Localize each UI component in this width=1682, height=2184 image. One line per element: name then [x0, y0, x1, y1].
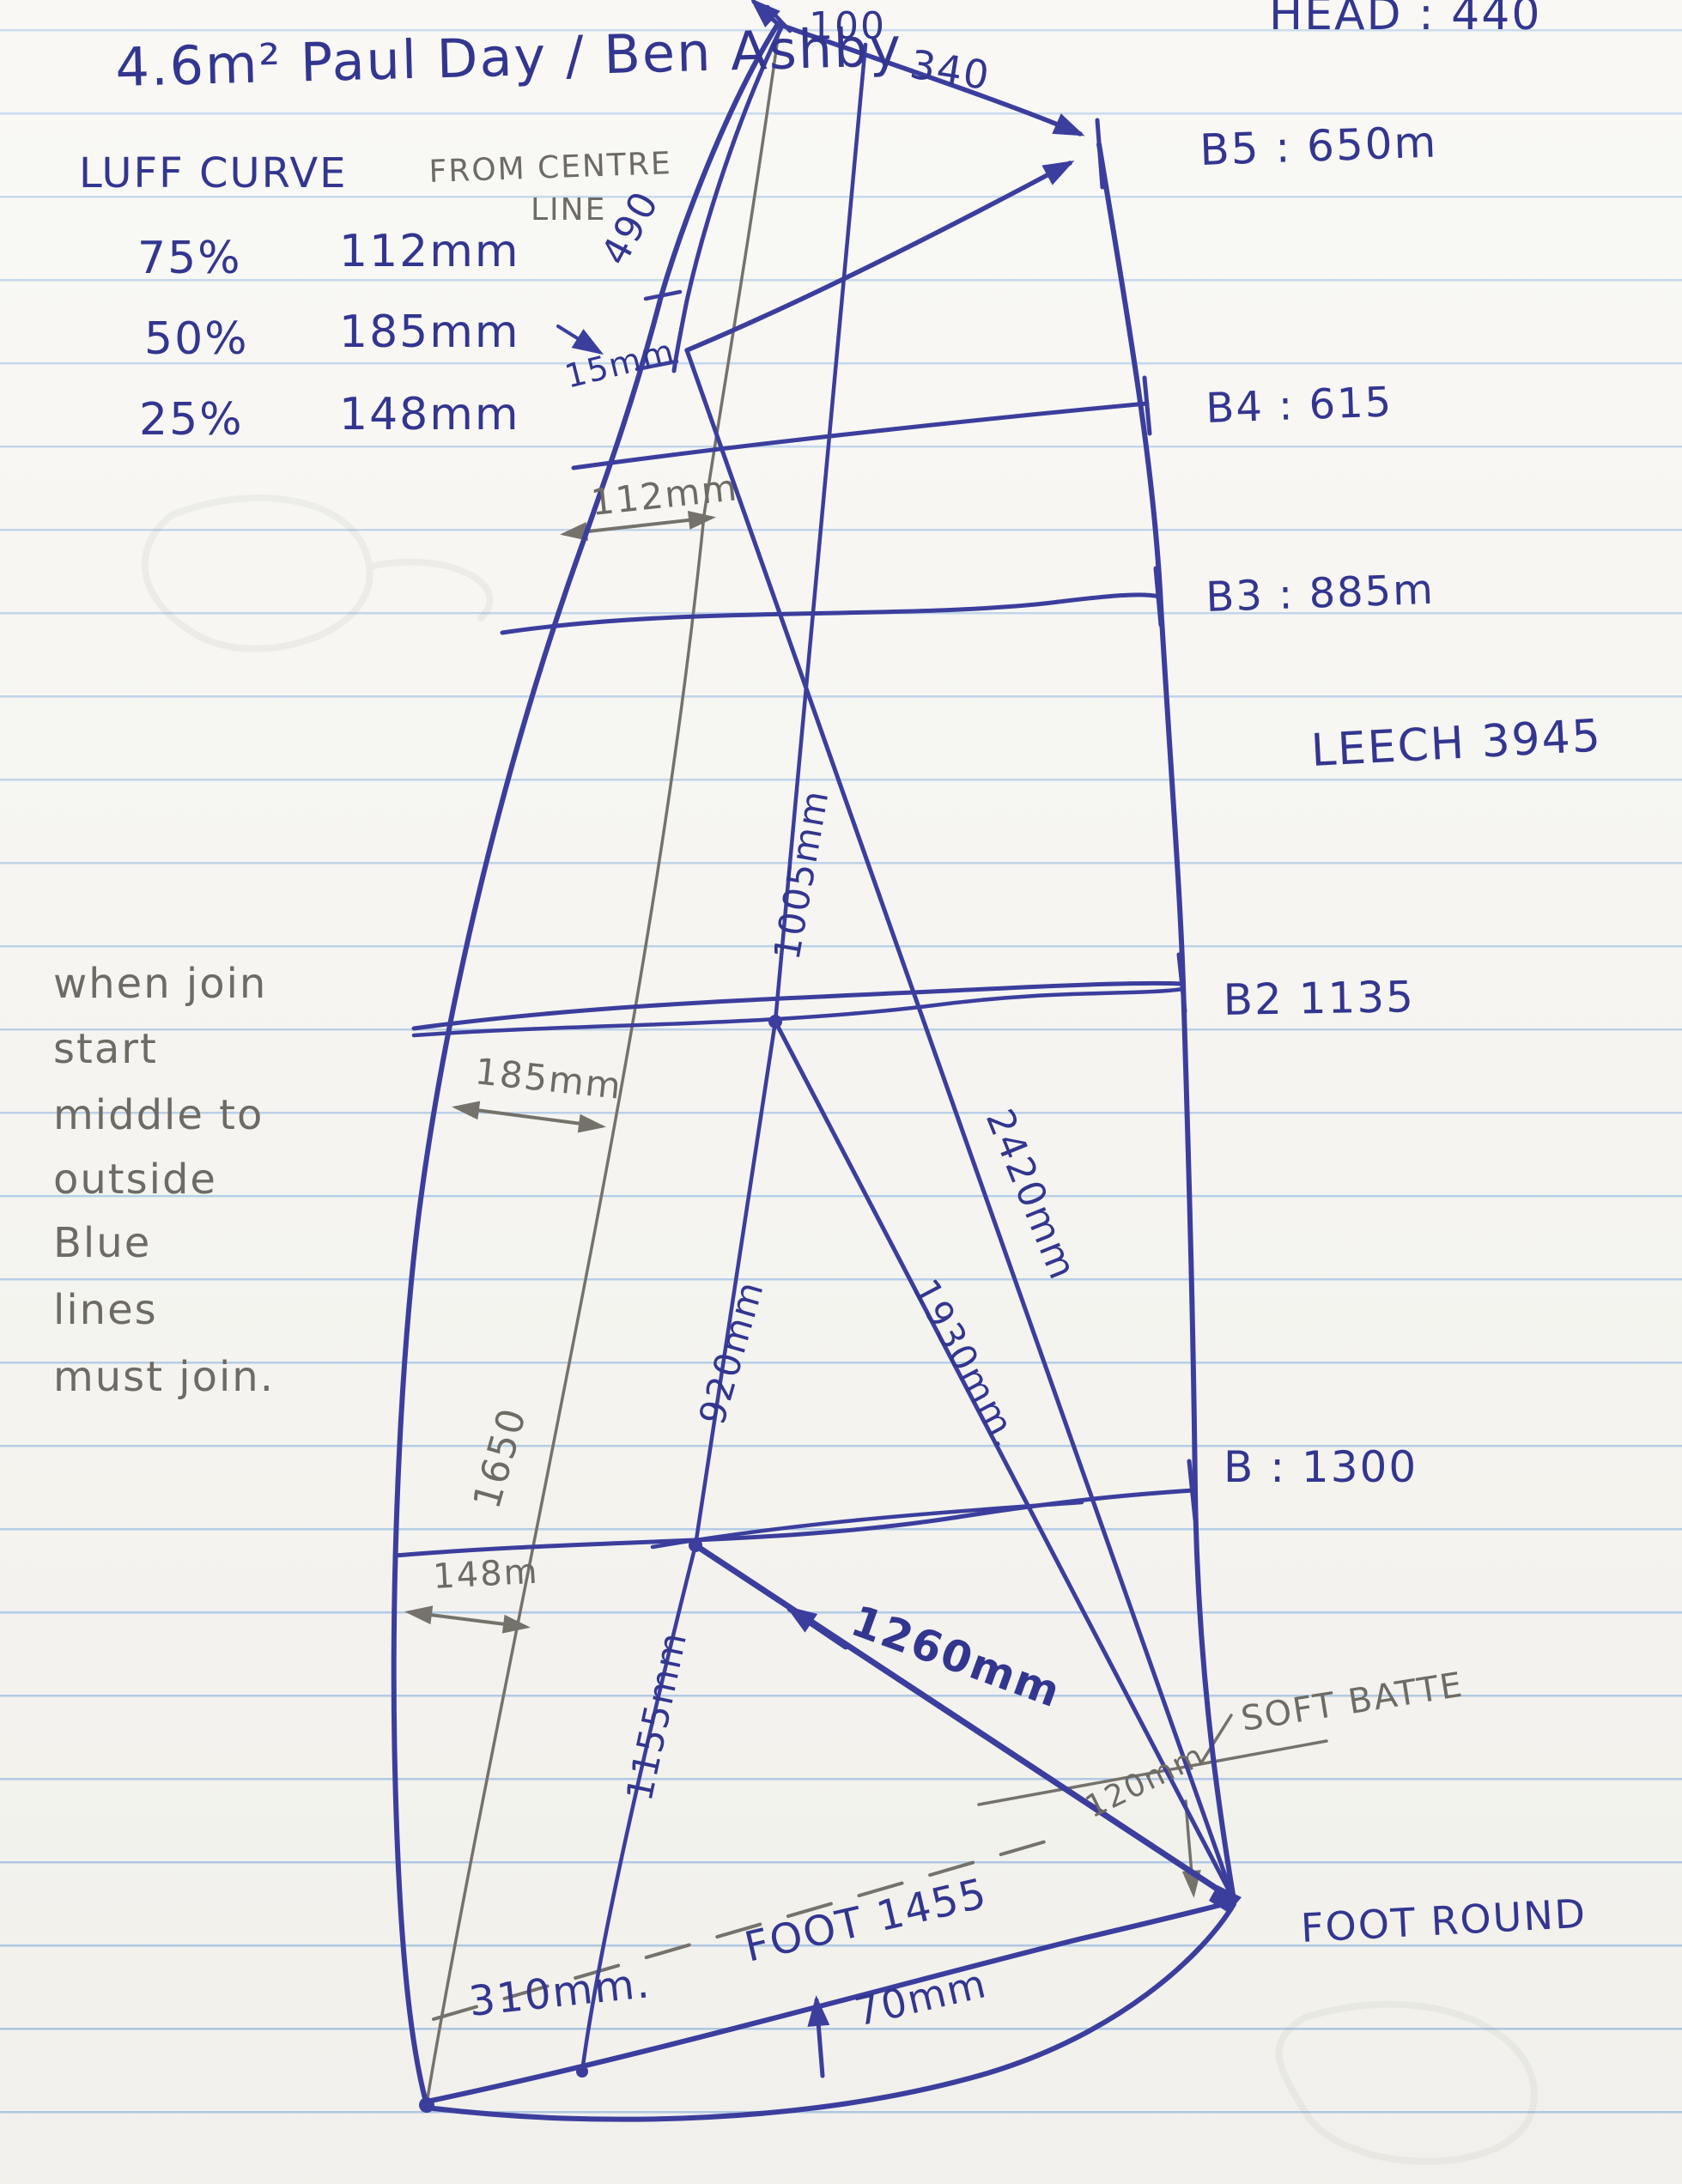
- measure-112-label: 112mm: [589, 466, 740, 524]
- luff-curve-heading: LUFF CURVE: [79, 149, 348, 197]
- batten-b2-label: B2 1135: [1223, 972, 1415, 1025]
- tack-point: [419, 2097, 434, 2113]
- luff-row-50-pct: 50%: [144, 313, 249, 365]
- measure-1650-label: 1650: [465, 1403, 536, 1514]
- margin-note-3: middle to: [53, 1091, 264, 1139]
- margin-note-6: lines: [53, 1286, 158, 1334]
- measure-185-arrow: [457, 1107, 601, 1126]
- margin-note-4: outside: [53, 1156, 217, 1204]
- leech-label: LEECH 3945: [1310, 710, 1604, 777]
- measure-185-label: 185mm: [473, 1050, 624, 1107]
- measure-1260-label: 1260mm: [845, 1596, 1068, 1718]
- line-1260-arrow: [790, 1609, 846, 1647]
- measure-310-label: 310mm.: [466, 1959, 653, 2026]
- measure-920-label: 920mm: [691, 1276, 773, 1429]
- measure-1930-label: 1930mm.: [904, 1272, 1029, 1456]
- measure-148-label: 148m: [432, 1552, 540, 1597]
- measure-1005-label: 1005mm: [766, 786, 837, 963]
- page-title: 4.6m² Paul Day / Ben Ashby: [114, 15, 902, 99]
- margin-note-1: when join: [53, 960, 267, 1008]
- luff-curve-note-1: FROM CENTRE: [428, 146, 672, 190]
- sail-plan-sketch: 4.6m² Paul Day / Ben Ashby HEAD : 440 LU…: [0, 0, 1682, 2184]
- foot-round-label: FOOT ROUND: [1300, 1890, 1588, 1951]
- margin-note-2: start: [53, 1025, 158, 1073]
- batten-b3-line: [502, 595, 1159, 633]
- leech-tick-b5: [1097, 120, 1102, 187]
- line-1260: [695, 1545, 1234, 1900]
- luff-15mm-label: 15mm: [562, 331, 679, 395]
- junction-b2: [768, 1015, 782, 1028]
- measure-148-arrow: [410, 1612, 525, 1627]
- luff-curve-note-2: LINE: [531, 192, 606, 227]
- head-width-label: 100: [809, 4, 886, 48]
- margin-note-7: must join.: [53, 1353, 275, 1401]
- measure-2420-label: 2420mm: [977, 1103, 1085, 1287]
- notebook-page: 4.6m² Paul Day / Ben Ashby HEAD : 440 LU…: [0, 0, 1682, 2184]
- foot-length-label: FOOT 1455: [740, 1869, 992, 1971]
- pencil-ghost: [145, 498, 490, 649]
- pencil-ghost: [1279, 2005, 1534, 2162]
- batten-b2-line: [414, 983, 1183, 1028]
- batten-b1-line: [395, 1490, 1193, 1556]
- junction-b1: [689, 1538, 702, 1552]
- luff-row-25-pct: 25%: [139, 394, 244, 446]
- batten-b4-label: B4 : 615: [1205, 378, 1394, 433]
- measure-70-label: 70mm: [850, 1960, 991, 2035]
- batten-b4-line: [574, 403, 1147, 468]
- measure-70-arrow: [817, 2000, 823, 2076]
- soft-batten-tick: [1202, 1715, 1231, 1762]
- measure-1155-label: 1155mm: [618, 1628, 695, 1805]
- luff-row-25-val: 148mm: [339, 389, 520, 440]
- margin-note-5: Blue: [53, 1219, 151, 1267]
- batten-b3-label: B3 : 885m: [1205, 566, 1435, 622]
- luff-row-75-val: 112mm: [339, 226, 520, 277]
- measure-15-arrow: [558, 326, 599, 352]
- luff-row-50-val: 185mm: [339, 306, 520, 358]
- foot-310-point: [576, 2066, 588, 2078]
- batten-b1-label: B : 1300: [1224, 1442, 1418, 1492]
- luff-row-75-pct: 75%: [137, 233, 242, 284]
- top-batten-label: 340: [907, 41, 993, 100]
- batten-b5-label: B5 : 650m: [1199, 117, 1438, 175]
- soft-batten-label: SOFT BATTE: [1238, 1665, 1466, 1739]
- head-label: HEAD : 440: [1269, 0, 1541, 40]
